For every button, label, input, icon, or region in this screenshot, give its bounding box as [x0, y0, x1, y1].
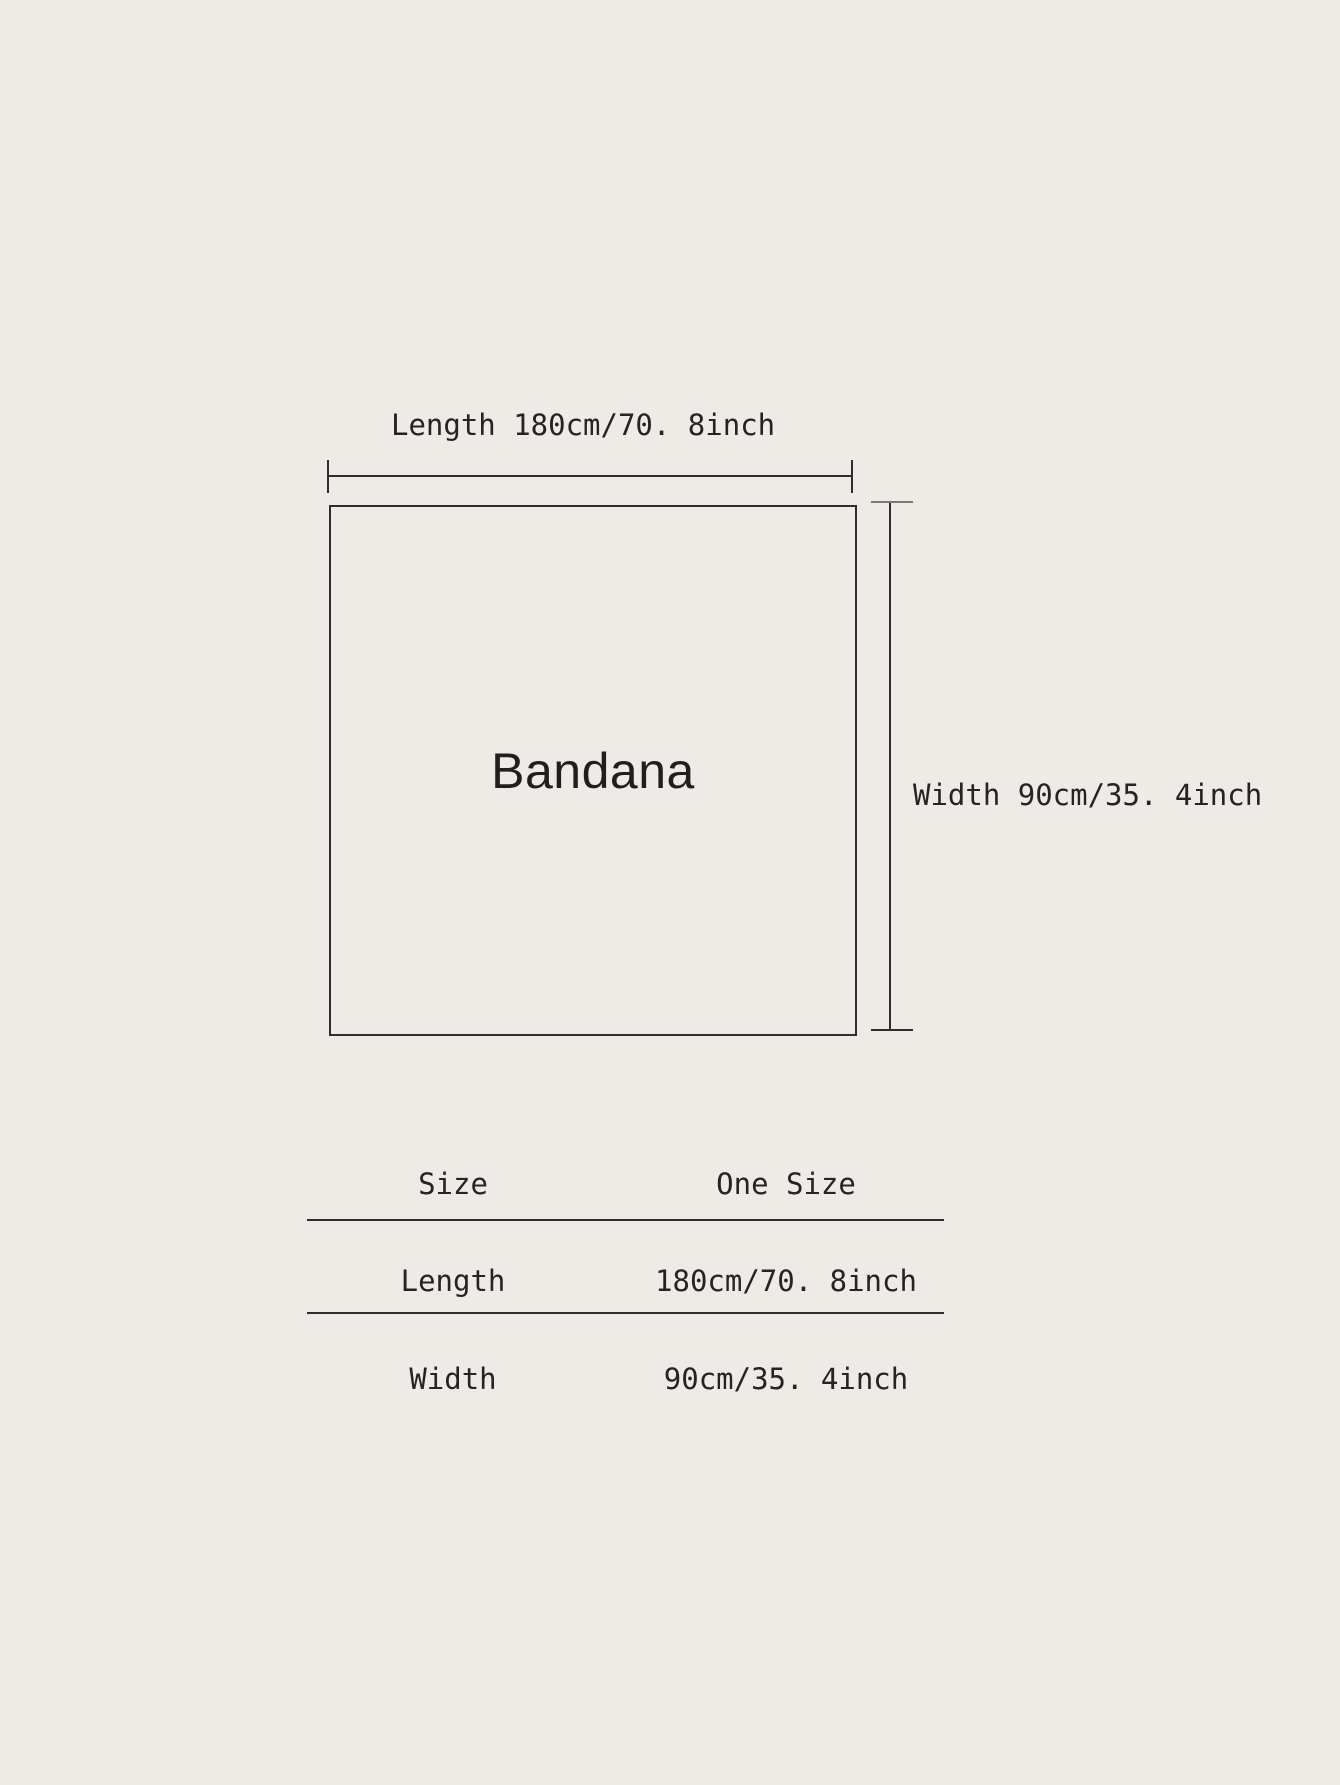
table-row-size: Size One Size [307, 1167, 944, 1207]
table-row-width: Width 90cm/35. 4inch [307, 1362, 944, 1402]
table-divider-top [307, 1219, 944, 1221]
table-row-length: Length 180cm/70. 8inch [307, 1264, 944, 1304]
length-measure-tick-left [327, 460, 329, 493]
length-row-header: Length [401, 1264, 506, 1298]
size-row-header: Size [418, 1167, 488, 1201]
bandana-outline: Bandana [329, 505, 857, 1036]
length-dimension-label: Length 180cm/70. 8inch [391, 408, 775, 442]
product-name-label: Bandana [491, 742, 695, 800]
width-measure-tick-bottom [871, 1029, 913, 1031]
length-measure-line [328, 475, 852, 477]
width-row-header: Width [409, 1362, 496, 1396]
size-table: Size One Size Length 180cm/70. 8inch Wid… [307, 1140, 944, 1420]
width-dimension-label: Width 90cm/35. 4inch [913, 778, 1262, 812]
length-measure-tick-right [851, 460, 853, 493]
length-row-value: 180cm/70. 8inch [655, 1264, 917, 1298]
width-row-value: 90cm/35. 4inch [664, 1362, 908, 1396]
table-divider-bottom [307, 1312, 944, 1314]
width-measure-line [889, 502, 891, 1030]
size-row-value: One Size [716, 1167, 856, 1201]
width-measure-tick-top [871, 501, 913, 503]
